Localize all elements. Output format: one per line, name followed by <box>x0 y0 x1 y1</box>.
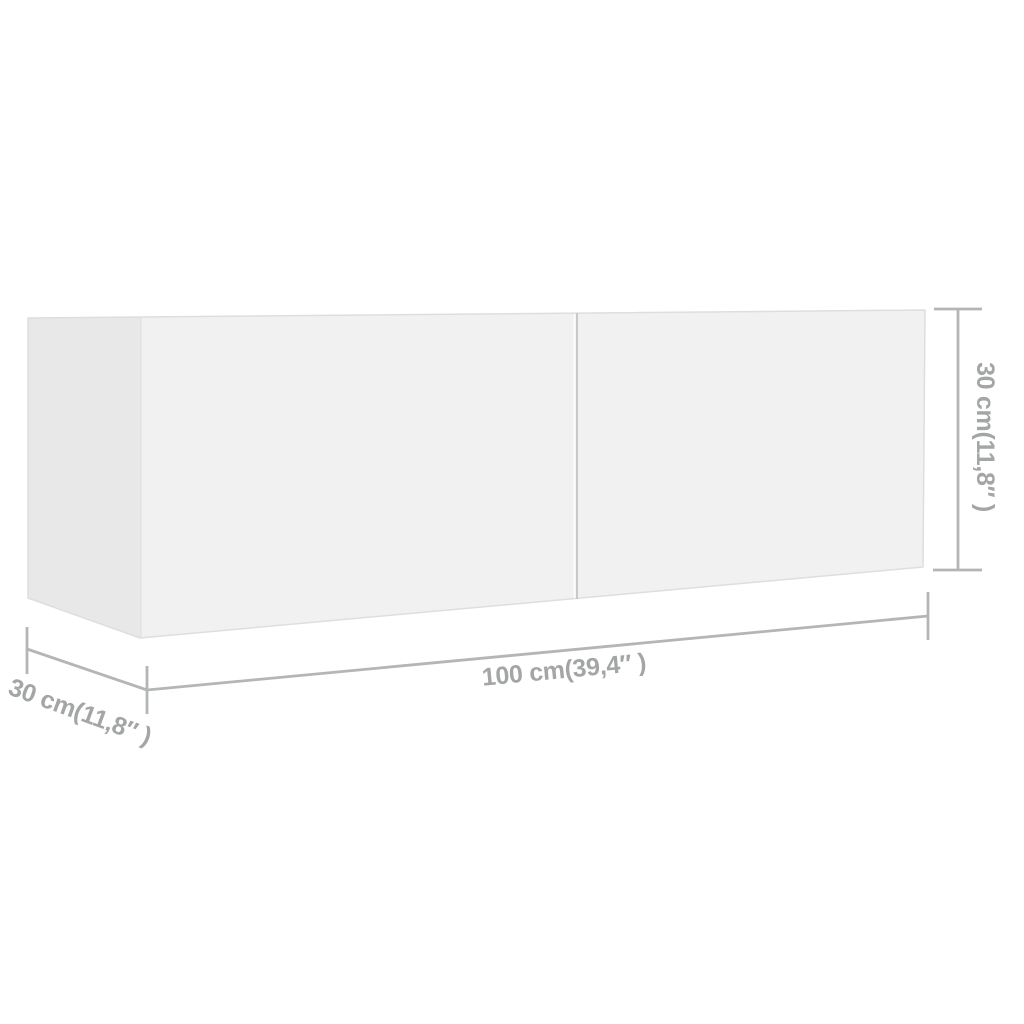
cabinet-side-face <box>28 317 141 638</box>
cabinet-front-face <box>141 310 925 638</box>
height-dimension-label: 30 cm(11,8″ ) <box>971 362 999 512</box>
depth-dimension: 30 cm(11,8″ ) <box>5 627 155 751</box>
product-dimension-diagram: 30 cm(11,8″ ) 100 cm(39,4″ ) 30 cm(11,8″… <box>0 0 1024 1024</box>
cabinet <box>28 310 925 638</box>
diagram-canvas: 30 cm(11,8″ ) 100 cm(39,4″ ) 30 cm(11,8″… <box>0 0 1024 1024</box>
height-dimension: 30 cm(11,8″ ) <box>933 309 999 570</box>
